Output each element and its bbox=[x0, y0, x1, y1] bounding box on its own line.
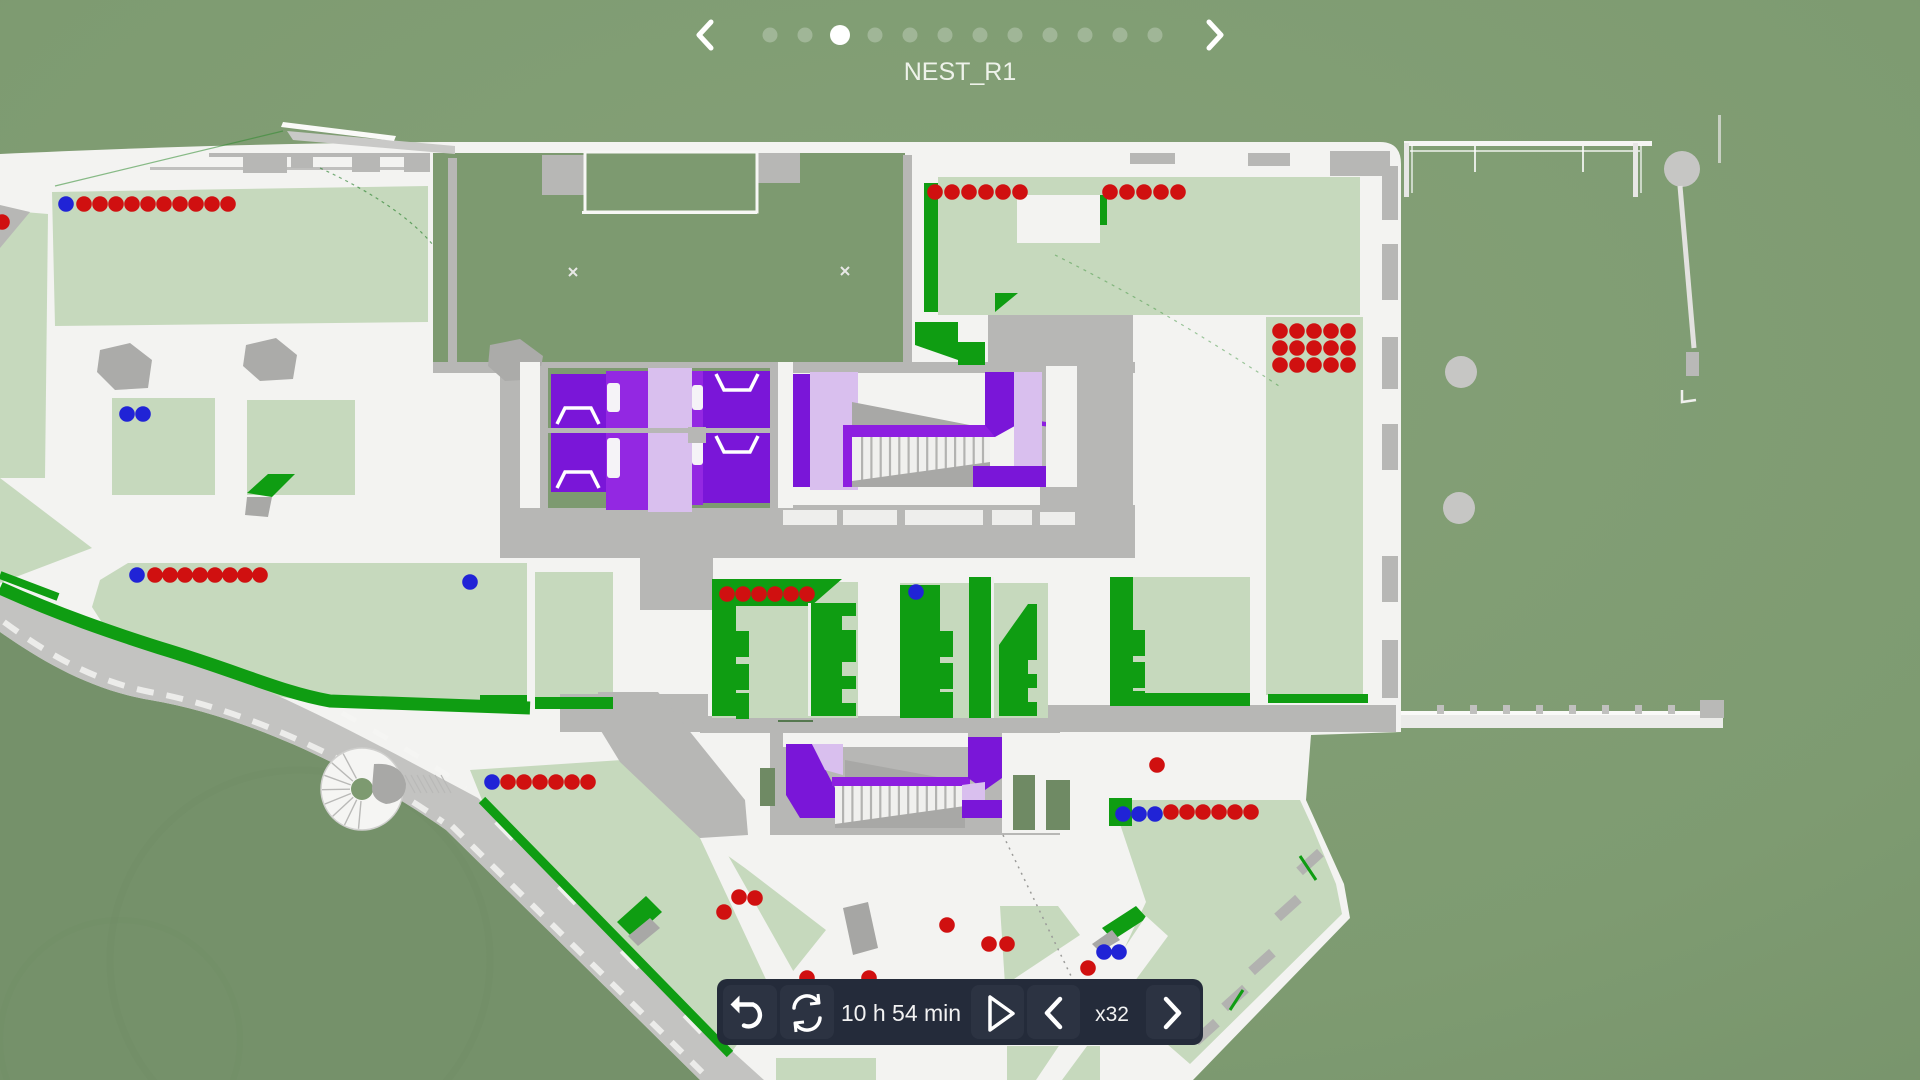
svg-text:NEST_R1: NEST_R1 bbox=[904, 58, 1017, 86]
svg-text:10 h 54 min: 10 h 54 min bbox=[841, 1000, 961, 1026]
svg-text:x32: x32 bbox=[1095, 1003, 1129, 1026]
